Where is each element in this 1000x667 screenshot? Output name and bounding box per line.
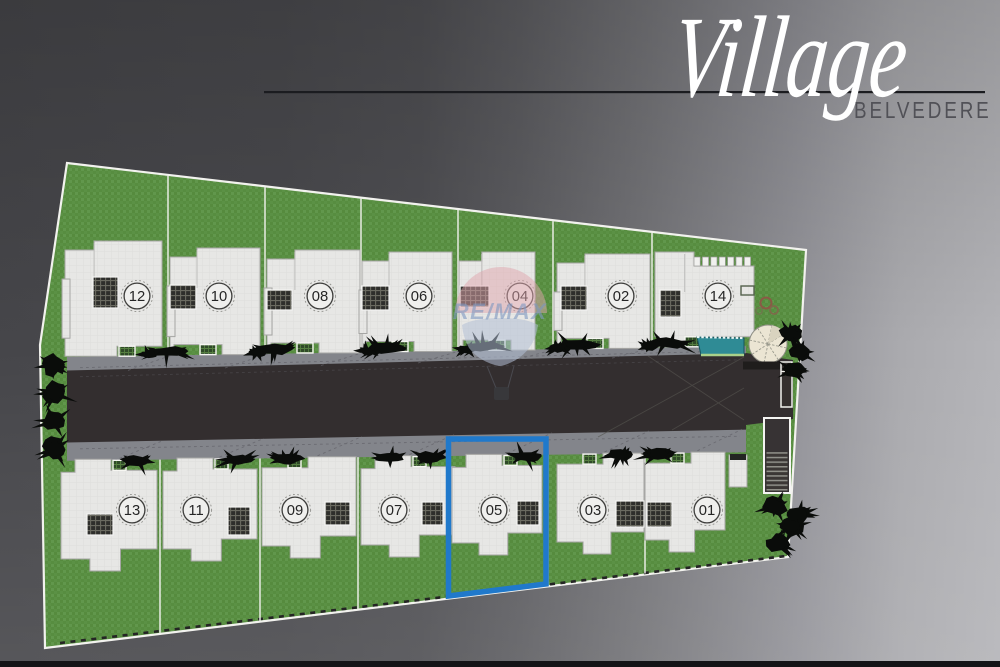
svg-text:13: 13: [124, 503, 140, 519]
svg-text:06: 06: [411, 289, 427, 305]
svg-text:11: 11: [188, 503, 203, 519]
svg-text:14: 14: [710, 289, 726, 305]
svg-text:RE/MAX: RE/MAX: [453, 299, 548, 324]
svg-text:03: 03: [585, 503, 601, 519]
svg-text:02: 02: [613, 289, 629, 305]
svg-text:09: 09: [287, 503, 303, 519]
svg-text:08: 08: [312, 289, 328, 305]
svg-text:05: 05: [486, 503, 502, 519]
svg-text:10: 10: [211, 289, 227, 305]
svg-text:12: 12: [129, 289, 145, 305]
svg-text:07: 07: [386, 503, 402, 519]
svg-text:01: 01: [699, 503, 715, 519]
